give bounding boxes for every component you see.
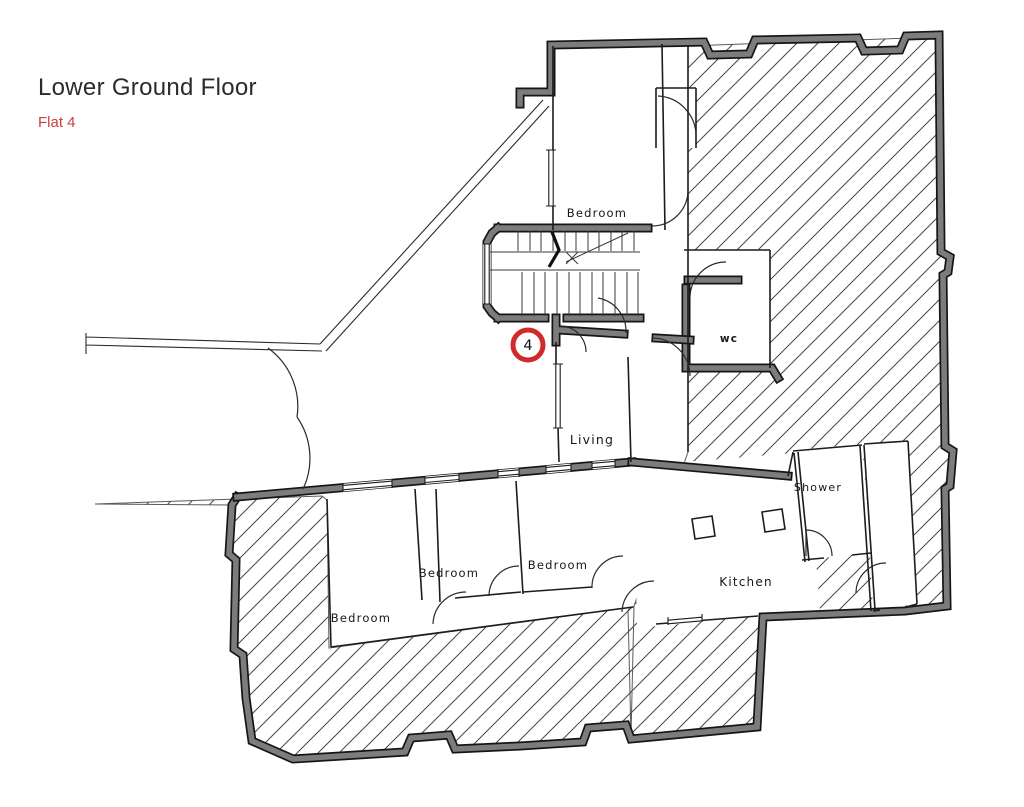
room-label-bedroom-mid-left: Bedroom bbox=[419, 566, 479, 580]
flat-marker-number: 4 bbox=[523, 338, 532, 354]
stair-direction-arrow bbox=[549, 232, 559, 267]
hall-fill bbox=[684, 250, 770, 292]
room-label-shower: Shower bbox=[794, 481, 842, 494]
floor-plan-page: Lower Ground Floor Flat 4 bbox=[0, 0, 1024, 807]
room-label-wc: wc bbox=[720, 333, 738, 345]
room-label-living: Living bbox=[570, 432, 614, 447]
shower-fill bbox=[793, 444, 871, 560]
bedroom-mid-left-fill bbox=[413, 481, 523, 603]
bedroom-mid-right-fill bbox=[516, 472, 631, 595]
courtyard-door-arc-2 bbox=[297, 417, 310, 489]
flat-4-marker: 4 bbox=[513, 330, 543, 360]
room-label-bedroom-mid-right: Bedroom bbox=[528, 558, 588, 572]
floor-plan-drawing: Bedroom wc Living Shower Kitchen Bedroom… bbox=[0, 0, 1024, 807]
room-label-bedroom-large: Bedroom bbox=[331, 611, 391, 625]
hall-door-arc bbox=[652, 190, 688, 226]
courtyard-door-arc-1 bbox=[268, 348, 298, 417]
wc-fill bbox=[684, 284, 770, 370]
courtyard-boundary-line bbox=[86, 100, 549, 354]
notch-fill bbox=[184, 712, 201, 767]
room-label-bedroom-top: Bedroom bbox=[567, 206, 627, 220]
room-label-kitchen: Kitchen bbox=[719, 575, 773, 589]
vestibule-fill bbox=[656, 88, 696, 148]
staircase bbox=[490, 231, 640, 316]
